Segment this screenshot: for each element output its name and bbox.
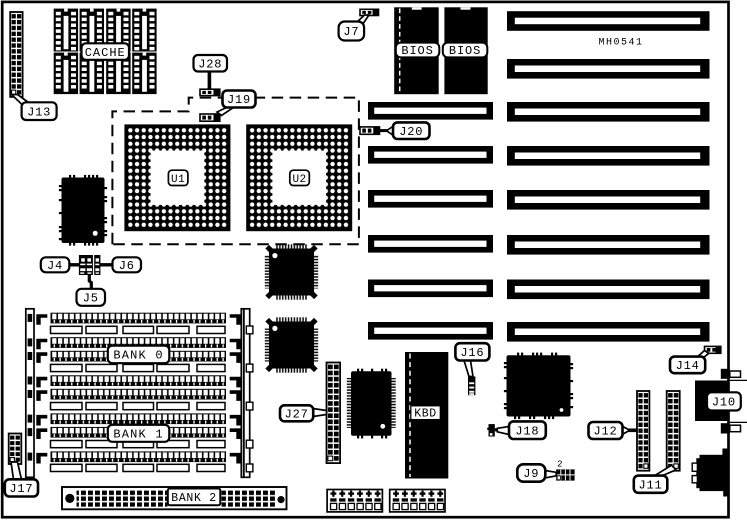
- svg-text:J12: J12: [593, 425, 617, 439]
- svg-text:J13: J13: [27, 105, 51, 119]
- svg-text:BANK 2: BANK 2: [171, 492, 217, 505]
- svg-text:J16: J16: [460, 346, 484, 360]
- svg-text:J4: J4: [47, 259, 63, 273]
- svg-text:J9: J9: [523, 467, 539, 481]
- svg-text:U1: U1: [171, 174, 185, 186]
- svg-text:J19: J19: [227, 93, 251, 107]
- svg-text:2: 2: [557, 459, 562, 469]
- svg-text:J5: J5: [83, 292, 99, 306]
- svg-text:U2: U2: [292, 174, 306, 186]
- svg-text:MH0541: MH0541: [598, 38, 643, 49]
- svg-text:CACHE: CACHE: [85, 46, 126, 60]
- svg-text:BIOS: BIOS: [449, 44, 481, 58]
- svg-text:J20: J20: [399, 125, 423, 139]
- svg-text:BANK 1: BANK 1: [113, 428, 163, 442]
- svg-text:KBD: KBD: [414, 408, 437, 421]
- svg-text:J10: J10: [712, 396, 736, 410]
- svg-text:J18: J18: [515, 424, 539, 438]
- svg-text:J6: J6: [119, 259, 135, 273]
- svg-text:J7: J7: [343, 25, 359, 39]
- svg-text:J28: J28: [198, 57, 222, 71]
- svg-text:BANK 0: BANK 0: [113, 349, 163, 363]
- svg-text:J11: J11: [639, 478, 663, 492]
- svg-text:J17: J17: [9, 482, 33, 496]
- svg-text:BIOS: BIOS: [401, 44, 433, 58]
- svg-text:J14: J14: [676, 359, 700, 373]
- svg-text:J27: J27: [285, 408, 309, 422]
